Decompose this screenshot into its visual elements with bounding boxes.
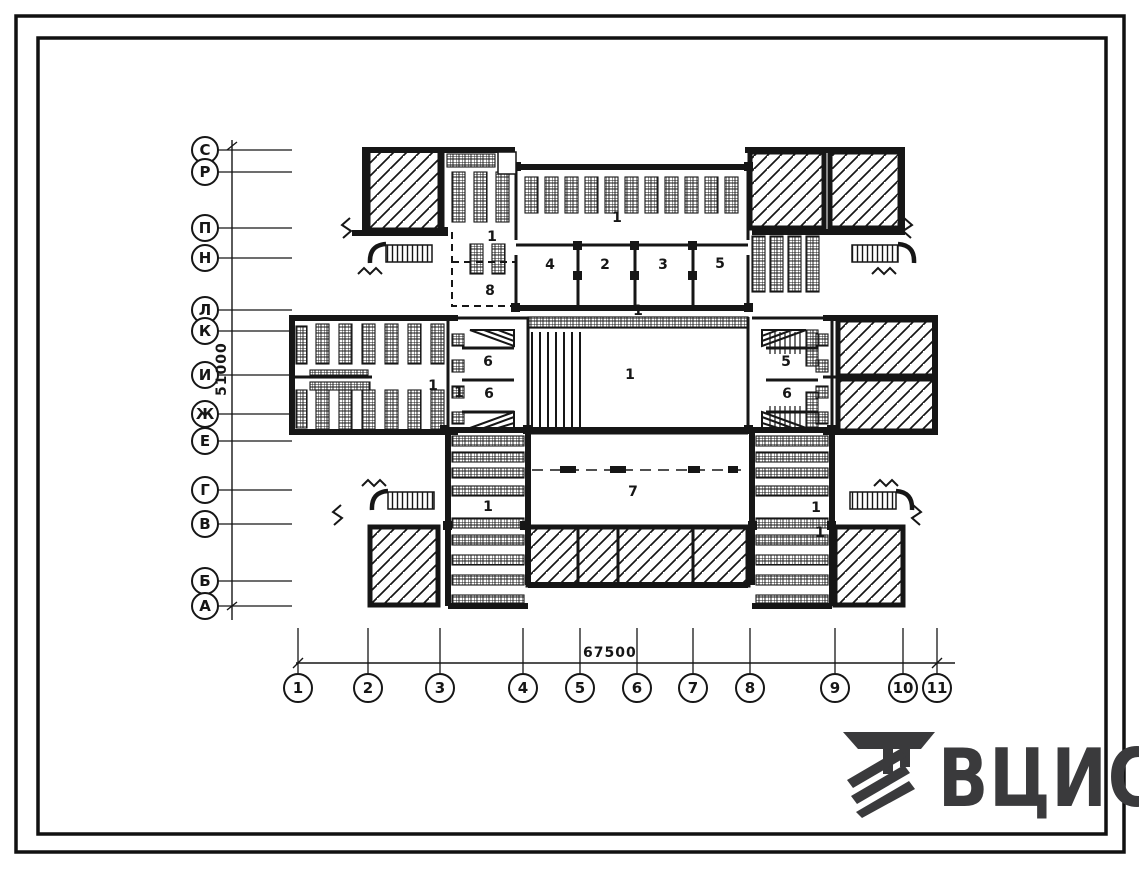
axis-col-label: 2 [363, 679, 373, 697]
axis-col-label: 3 [435, 679, 445, 697]
column-mark [439, 227, 448, 236]
column-mark [744, 425, 753, 434]
room-label-6: 6 [483, 354, 493, 370]
book-stack [565, 177, 578, 213]
room-label-4: 4 [545, 257, 555, 273]
book-stack [339, 390, 352, 430]
book-stack [452, 468, 524, 478]
axis-col-label: 9 [830, 679, 840, 697]
book-stack [452, 412, 464, 424]
book-stack [756, 555, 828, 565]
book-stack [756, 468, 828, 478]
column-mark [744, 303, 753, 312]
axis-row-А: А [192, 593, 292, 619]
book-stack [585, 177, 598, 213]
book-stack [310, 370, 368, 378]
room-label-6: 6 [484, 386, 494, 402]
room-label-1: 1 [815, 525, 825, 541]
room-label-1: 1 [612, 210, 622, 226]
book-stack [452, 518, 524, 528]
book-stack [452, 172, 465, 222]
book-stack [756, 595, 828, 605]
book-stack [470, 244, 483, 274]
book-stack [447, 154, 495, 167]
logo-text: ВЦИС [938, 733, 1139, 826]
room-label-1: 1 [811, 500, 821, 516]
room-label-1: 1 [428, 378, 438, 394]
book-stack [408, 390, 421, 430]
book-stack [452, 436, 524, 446]
horizontal-dimension: 67500 [583, 645, 637, 661]
book-stack [645, 177, 658, 213]
axis-row-label: П [199, 219, 212, 237]
drawing-sheet: СРПНЛКИЖЕГВБА 1234567891011 51000 67500 … [0, 0, 1139, 869]
book-stack [770, 236, 783, 292]
axis-row-label: Л [199, 301, 211, 319]
book-stack [310, 382, 370, 390]
room-label-2: 2 [600, 257, 610, 273]
axis-col-4: 4 [509, 628, 537, 702]
column-mark [630, 271, 639, 280]
book-stack [685, 177, 698, 213]
axis-col-label: 7 [688, 679, 698, 697]
room-label-1: 1 [487, 229, 497, 245]
column-mark [688, 271, 697, 280]
book-stack [496, 172, 509, 222]
room-label-5: 5 [715, 256, 725, 272]
axis-row-label: С [199, 141, 210, 159]
book-stack [452, 555, 524, 565]
book-stack [788, 236, 801, 292]
axis-row-Н: Н [192, 245, 292, 271]
small-room-nw [498, 152, 516, 174]
book-stack [816, 360, 828, 372]
axis-row-label: К [199, 322, 212, 340]
book-stack [316, 390, 329, 430]
axis-row-Ж: Ж [192, 401, 292, 427]
axis-col-label: 10 [893, 679, 914, 697]
bottom-axis: 1234567891011 [284, 628, 951, 702]
book-stack [452, 360, 464, 372]
axis-col-label: 11 [927, 679, 948, 697]
axis-col-3: 3 [426, 628, 454, 702]
axis-col-10: 10 [889, 628, 917, 702]
column-mark [827, 425, 836, 434]
floor-plan-canvas: СРПНЛКИЖЕГВБА 1234567891011 51000 67500 … [0, 0, 1139, 869]
axis-col-1: 1 [284, 628, 312, 702]
axis-col-label: 5 [575, 679, 585, 697]
axis-row-label: В [199, 515, 210, 533]
hatch-block-se [835, 527, 903, 605]
column-mark [573, 241, 582, 250]
axis-row-label: А [199, 597, 211, 615]
book-stack [452, 452, 524, 462]
room-label-8: 8 [485, 283, 495, 299]
book-stack [296, 326, 307, 364]
room-label-1: 1 [454, 385, 464, 401]
axis-row-label: Е [200, 432, 210, 450]
room-label-1: 1 [625, 367, 635, 383]
hatch-block-nw [368, 150, 440, 230]
hatch-block-east-1 [838, 320, 935, 376]
book-stack [339, 324, 352, 364]
book-stack [605, 177, 618, 213]
book-stack [316, 324, 329, 364]
axis-row-Р: Р [192, 159, 292, 185]
axis-row-К: К [192, 318, 292, 344]
book-stack [452, 535, 524, 545]
book-stack [756, 436, 828, 446]
column-mark [523, 425, 532, 434]
book-stack [816, 412, 828, 424]
column-mark [511, 303, 520, 312]
logo: ВЦИС [843, 732, 1139, 826]
axis-row-label: Г [200, 481, 210, 499]
book-stack [385, 390, 398, 430]
book-stack [296, 390, 307, 428]
column-mark [573, 271, 582, 280]
left-axis: СРПНЛКИЖЕГВБА [192, 137, 292, 619]
book-stack [816, 386, 828, 398]
core-stair-triangles [470, 330, 806, 428]
book-stack [452, 595, 524, 605]
book-stack [452, 486, 524, 496]
axis-row-label: Ж [196, 405, 215, 423]
axis-col-9: 9 [821, 628, 849, 702]
book-stack [474, 172, 487, 222]
room-label-5: 5 [781, 354, 791, 370]
room-label-7: 7 [628, 484, 638, 500]
axis-row-В: В [192, 511, 292, 537]
axis-col-5: 5 [566, 628, 594, 702]
axis-row-label: Н [199, 249, 212, 267]
column-mark [744, 162, 753, 171]
axis-row-Г: Г [192, 477, 292, 503]
book-stack [756, 452, 828, 462]
room-label-1: 1 [483, 499, 493, 515]
book-stack [452, 334, 464, 346]
room-label-1: 1 [633, 303, 643, 319]
book-stack [408, 324, 421, 364]
axis-col-7: 7 [679, 628, 707, 702]
book-stack [725, 177, 738, 213]
column-mark [630, 241, 639, 250]
axis-col-label: 1 [293, 679, 303, 697]
vertical-dimension: 51000 [214, 342, 230, 396]
book-stack [431, 390, 444, 430]
axis-col-11: 11 [923, 628, 951, 702]
book-stack [756, 486, 828, 496]
hatch-block-east-2 [838, 379, 935, 431]
book-stack [756, 575, 828, 585]
axis-row-label: И [199, 366, 212, 384]
book-stack [362, 324, 375, 364]
axis-row-И: И [192, 362, 292, 388]
book-stack [385, 324, 398, 364]
room-label-3: 3 [658, 257, 668, 273]
hall-grand-stair [532, 332, 580, 428]
room-label-6: 6 [782, 386, 792, 402]
book-stack [816, 334, 828, 346]
book-stack [752, 236, 765, 292]
book-stack [705, 177, 718, 213]
axis-row-Б: Б [192, 568, 292, 594]
axis-col-label: 8 [745, 679, 755, 697]
hatch-block-sw [370, 527, 438, 605]
book-stack [452, 575, 524, 585]
axis-col-6: 6 [623, 628, 651, 702]
book-stack [492, 244, 505, 274]
hatch-block-ne-1 [750, 152, 824, 228]
book-stack [665, 177, 678, 213]
axis-row-label: Б [199, 572, 210, 590]
axis-row-П: П [192, 215, 292, 241]
axis-col-label: 4 [518, 679, 528, 697]
axis-col-8: 8 [736, 628, 764, 702]
logo-icon [843, 732, 935, 818]
axis-col-label: 6 [632, 679, 642, 697]
column-mark [688, 241, 697, 250]
book-stack [806, 236, 819, 292]
book-stack [525, 177, 538, 213]
book-stack [545, 177, 558, 213]
hatch-block-ne-2 [830, 152, 900, 228]
column-mark [443, 521, 452, 530]
book-stack [362, 390, 375, 430]
book-stack [431, 324, 444, 364]
book-stack [625, 177, 638, 213]
axis-col-2: 2 [354, 628, 382, 702]
axis-row-label: Р [200, 163, 211, 181]
axis-row-Е: Е [192, 428, 292, 454]
hatch-block-south-band [528, 527, 748, 585]
